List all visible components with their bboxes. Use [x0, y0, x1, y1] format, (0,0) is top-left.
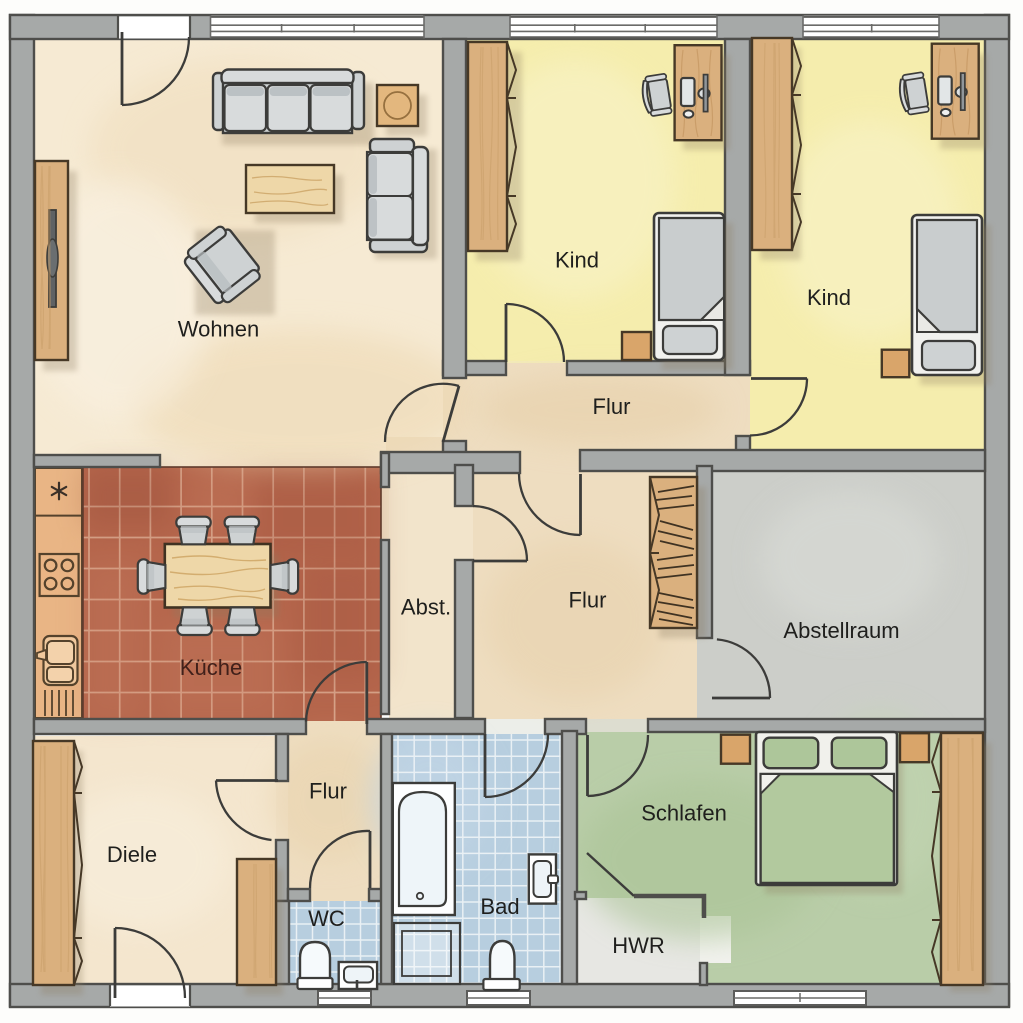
svg-text:Kind: Kind: [555, 248, 599, 273]
svg-text:Abstellraum: Abstellraum: [783, 618, 899, 643]
svg-text:WC: WC: [308, 906, 345, 931]
svg-text:Flur: Flur: [593, 394, 631, 419]
svg-text:Diele: Diele: [107, 842, 157, 867]
svg-text:Bad: Bad: [480, 894, 519, 919]
svg-text:Flur: Flur: [569, 588, 607, 613]
svg-text:Schlafen: Schlafen: [641, 801, 727, 826]
svg-text:Abst.: Abst.: [401, 595, 451, 620]
svg-text:HWR: HWR: [612, 933, 665, 958]
svg-text:Küche: Küche: [180, 655, 242, 680]
svg-text:Flur: Flur: [309, 779, 347, 804]
svg-text:Kind: Kind: [807, 285, 851, 310]
svg-text:Wohnen: Wohnen: [178, 317, 260, 342]
